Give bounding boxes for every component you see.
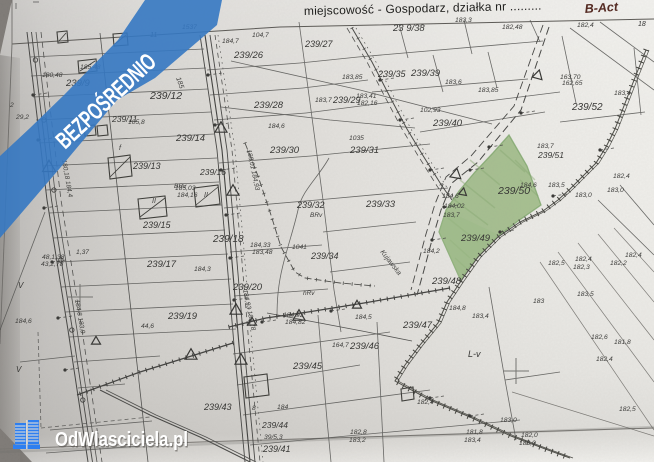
- svg-text:B-Act: B-Act: [584, 0, 619, 16]
- svg-text:OdWlasciciela.pl: OdWlasciciela.pl: [55, 428, 188, 451]
- svg-text:18: 18: [638, 21, 646, 28]
